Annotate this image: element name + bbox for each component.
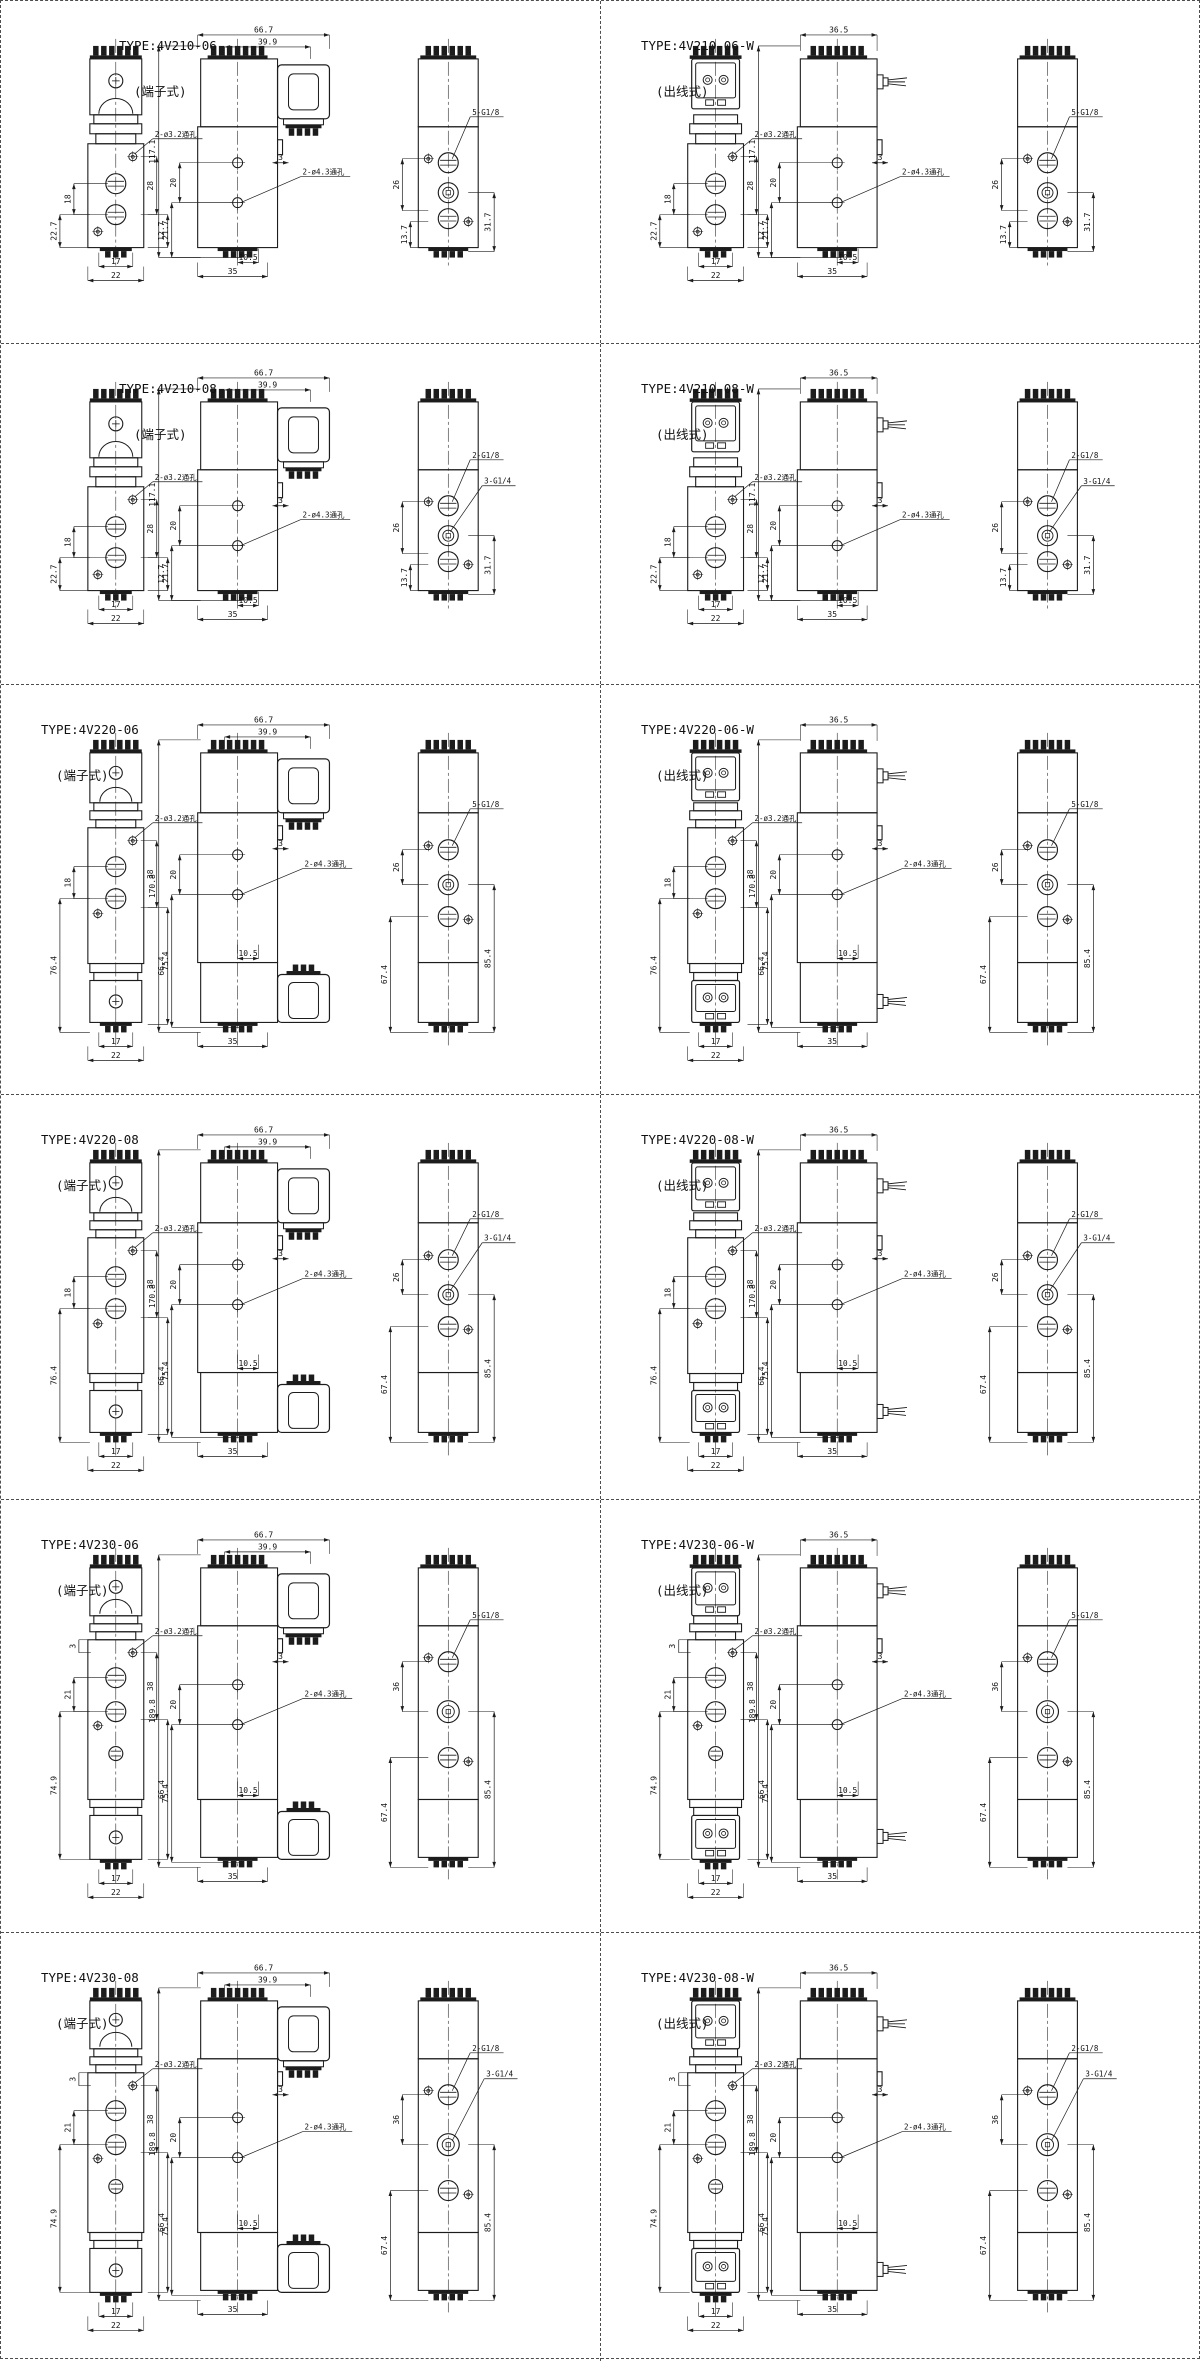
leader-label: 2-ø4.3通孔 <box>304 1269 346 1279</box>
dim-label: 189.8 <box>748 1699 757 1723</box>
dim-label: 20 <box>169 870 178 880</box>
leader-label: 2-G1/8 <box>1071 1210 1098 1219</box>
valve-wiring-label: (端子式) <box>56 1178 139 1193</box>
panel-4v220-08: TYPE:4V220-08 (端子式) 1876.43866.417222-ø3… <box>1 1095 600 1499</box>
leader-label: 5-G1/8 <box>1071 1611 1098 1620</box>
port-face-view: 2667.485.42-G1/83-G1/4 <box>380 1143 516 1456</box>
leader-label: 3-G1/4 <box>484 477 511 486</box>
dim-label: 170.8 <box>148 1284 157 1308</box>
dim-label: 35 <box>827 1872 837 1881</box>
dim-label: 35 <box>827 1037 837 1046</box>
dim-label: 85.4 <box>1083 2212 1092 2231</box>
valve-type-label: TYPE:4V220-08-W <box>641 1132 754 1147</box>
leader-label: 2-ø3.2通孔 <box>155 472 197 482</box>
side-view-connector: 3189.82075.410.53566.739.92-ø4.3通孔 <box>148 1963 352 2316</box>
panel-title: TYPE:4V210-06 (端子式) <box>119 8 217 129</box>
port-face-view: 2667.485.45-G1/8 <box>380 733 504 1046</box>
valve-type-label: TYPE:4V210-08-W <box>641 381 754 396</box>
side-view-connector: 3189.82075.410.53536.52-ø4.3通孔 <box>748 1531 952 1884</box>
dim-label: 85.4 <box>1083 949 1092 968</box>
valve-type-label: TYPE:4V210-08 <box>119 381 217 396</box>
leader-label: 2-ø3.2通孔 <box>155 129 197 139</box>
dim-label: 13.7 <box>999 225 1008 244</box>
dim-label: 189.8 <box>748 2132 757 2156</box>
dim-label: 117.1 <box>748 140 757 164</box>
dim-label: 66.7 <box>254 1531 273 1540</box>
dim-label: 85.4 <box>484 2212 493 2231</box>
dim-label: 21 <box>663 2122 672 2132</box>
leader-label: 2-ø3.2通孔 <box>155 1223 197 1233</box>
dim-label: 22.7 <box>649 221 658 240</box>
dim-label: 3 <box>878 1653 883 1662</box>
dim-label: 38 <box>146 2114 155 2124</box>
leader-label: 2-ø4.3通孔 <box>902 167 944 177</box>
dim-label: 17 <box>711 1037 721 1046</box>
dim-label: 35 <box>827 1447 837 1456</box>
side-view-connector: 3170.82075.410.53566.739.92-ø4.3通孔 <box>148 1126 352 1459</box>
panel-title: TYPE:4V220-08 (端子式) <box>41 1102 139 1223</box>
leader-label: 2-ø3.2通孔 <box>754 129 796 139</box>
dim-label: 76.4 <box>49 1366 58 1385</box>
dim-label: 18 <box>63 878 72 888</box>
dim-label: 18 <box>63 194 72 204</box>
leader-label: 2-ø4.3通孔 <box>302 510 344 520</box>
dim-label: 20 <box>169 521 178 531</box>
dim-label: 26 <box>991 1272 1000 1282</box>
dim-label: 3 <box>278 1653 283 1662</box>
dim-label: 13.7 <box>400 225 409 244</box>
panel-4v230-08: TYPE:4V230-08 (端子式) 32174.93866.417222-ø… <box>1 1933 600 2361</box>
dim-label: 36.5 <box>829 715 848 724</box>
dim-label: 21 <box>63 2122 72 2132</box>
port-face-view: 2667.485.42-G1/83-G1/4 <box>979 1143 1114 1456</box>
leader-label: 2-ø3.2通孔 <box>754 813 796 823</box>
dim-label: 85.4 <box>484 1359 493 1378</box>
dim-label: 36.5 <box>829 369 848 378</box>
port-face-view: 2667.485.45-G1/8 <box>979 733 1103 1046</box>
dim-label: 3 <box>278 497 283 506</box>
dim-label: 26 <box>991 862 1000 872</box>
valve-drawing: 1822.72812.717222-ø3.2通孔3117.12021.710.5… <box>1 1 600 343</box>
dim-label: 75.4 <box>161 2216 170 2235</box>
leader-label: 5-G1/8 <box>472 108 499 117</box>
valve-type-label: TYPE:4V230-06-W <box>641 1537 754 1552</box>
valve-type-label: TYPE:4V220-08 <box>41 1132 139 1147</box>
panel-title: TYPE:4V230-08-W (出线式) <box>641 1940 754 2061</box>
dim-label: 17 <box>111 2307 121 2316</box>
dim-label: 31.7 <box>484 212 493 231</box>
leader-label: 2-ø4.3通孔 <box>304 2121 346 2131</box>
panel-4v210-08: TYPE:4V210-08 (端子式) 1822.72812.717222-ø3… <box>1 344 600 683</box>
dim-label: 75.4 <box>761 951 770 970</box>
port-face-view: 3667.485.45-G1/8 <box>979 1548 1103 1879</box>
dim-label: 36 <box>991 1682 1000 1692</box>
dim-label: 10.5 <box>238 2219 257 2228</box>
leader-label: 3-G1/4 <box>1083 477 1110 486</box>
panel-4v210-06: TYPE:4V210-06 (端子式) 1822.72812.717222-ø3… <box>1 1 600 343</box>
dim-label: 39.9 <box>258 1975 277 1984</box>
dim-label: 85.4 <box>484 949 493 968</box>
dim-label: 21.7 <box>761 564 770 583</box>
dim-label: 20 <box>769 1700 778 1710</box>
dim-label: 20 <box>769 2132 778 2142</box>
panel-title: TYPE:4V230-06 (端子式) <box>41 1507 139 1628</box>
dim-label: 3 <box>668 1644 677 1649</box>
dim-label: 22 <box>711 614 721 623</box>
dim-label: 20 <box>769 870 778 880</box>
leader-label: 2-ø3.2通孔 <box>754 1626 796 1636</box>
dim-label: 10.5 <box>838 596 857 605</box>
leader-label: 5-G1/8 <box>472 800 499 809</box>
dim-label: 67.4 <box>380 2235 389 2254</box>
dim-label: 3 <box>878 839 883 848</box>
valve-wiring-label: (端子式) <box>134 427 217 442</box>
dim-label: 20 <box>769 521 778 531</box>
dim-label: 10.5 <box>238 253 257 262</box>
dim-label: 20 <box>169 1280 178 1290</box>
leader-label: 2-ø4.3通孔 <box>904 1269 946 1279</box>
dim-label: 85.4 <box>1083 1780 1092 1799</box>
leader-label: 3-G1/4 <box>486 2069 513 2078</box>
dim-label: 75.4 <box>761 2216 770 2235</box>
panel-title: TYPE:4V220-08-W (出线式) <box>641 1102 754 1223</box>
dim-label: 13.7 <box>999 568 1008 587</box>
valve-type-label: TYPE:4V230-08 <box>41 1970 139 1985</box>
leader-label: 2-ø4.3通孔 <box>302 167 344 177</box>
dim-label: 17 <box>111 257 121 266</box>
dim-label: 22 <box>711 1051 721 1060</box>
valve-wiring-label: (出线式) <box>656 427 754 442</box>
dim-label: 28 <box>146 524 155 534</box>
dim-label: 28 <box>746 181 755 191</box>
side-view-connector: 3189.82075.410.53566.739.92-ø4.3通孔 <box>148 1531 352 1884</box>
dim-label: 22.7 <box>49 565 58 584</box>
dim-label: 18 <box>663 194 672 204</box>
panel-title: TYPE:4V210-08-W (出线式) <box>641 351 754 472</box>
dim-label: 76.4 <box>649 956 658 975</box>
side-view-connector: 3170.82075.410.53536.52-ø4.3通孔 <box>748 715 952 1048</box>
dim-label: 35 <box>827 610 837 619</box>
dim-label: 20 <box>169 178 178 188</box>
dim-label: 3 <box>878 1249 883 1258</box>
dim-label: 22.7 <box>49 221 58 240</box>
dim-label: 66.7 <box>254 25 273 34</box>
valve-type-label: TYPE:4V230-08-W <box>641 1970 754 1985</box>
dim-label: 35 <box>228 2305 238 2314</box>
dim-label: 35 <box>228 1447 238 1456</box>
dim-label: 17 <box>711 600 721 609</box>
dim-label: 67.4 <box>979 1375 988 1394</box>
dim-label: 21.7 <box>761 220 770 239</box>
dim-label: 18 <box>63 1288 72 1298</box>
dim-label: 36.5 <box>829 1126 848 1135</box>
dim-label: 189.8 <box>148 1699 157 1723</box>
dim-label: 17 <box>711 1447 721 1456</box>
leader-label: 2-G1/8 <box>472 2044 499 2053</box>
dim-label: 10.5 <box>238 1359 257 1368</box>
dim-label: 10.5 <box>238 596 257 605</box>
dim-label: 170.8 <box>748 874 757 898</box>
valve-wiring-label: (端子式) <box>56 2016 139 2031</box>
dim-label: 67.4 <box>979 965 988 984</box>
dim-label: 74.9 <box>49 2208 58 2227</box>
valve-wiring-label: (出线式) <box>656 768 754 783</box>
dim-label: 35 <box>228 610 238 619</box>
dim-label: 10.5 <box>838 949 857 958</box>
panel-4v230-08-w: TYPE:4V230-08-W (出线式) 32174.93866.417222… <box>600 1933 1199 2361</box>
drawing-sheet: TYPE:4V210-06 (端子式) 1822.72812.717222-ø3… <box>0 0 1200 2359</box>
leader-label: 2-G1/8 <box>472 451 499 460</box>
dim-label: 3 <box>668 2076 677 2081</box>
dim-label: 117.1 <box>148 140 157 164</box>
dim-label: 39.9 <box>258 727 277 736</box>
dim-label: 17 <box>111 1874 121 1883</box>
dim-label: 36.5 <box>829 25 848 34</box>
valve-wiring-label: (端子式) <box>56 768 139 783</box>
dim-label: 21.7 <box>161 220 170 239</box>
leader-label: 2-ø4.3通孔 <box>904 2121 946 2131</box>
leader-label: 2-ø3.2通孔 <box>754 1223 796 1233</box>
panel-4v220-06-w: TYPE:4V220-06-W (出线式) 1876.43866.417222-… <box>600 685 1199 1094</box>
dim-label: 26 <box>392 1272 401 1282</box>
leader-label: 2-G1/8 <box>472 1210 499 1219</box>
panel-4v230-06-w: TYPE:4V230-06-W (出线式) 32174.93866.417222… <box>600 1500 1199 1931</box>
dim-label: 74.9 <box>649 2208 658 2227</box>
dim-label: 22 <box>111 1051 121 1060</box>
dim-label: 17 <box>711 2307 721 2316</box>
leader-label: 2-ø4.3通孔 <box>304 1689 346 1699</box>
dim-label: 35 <box>827 2305 837 2314</box>
dim-label: 170.8 <box>748 1284 757 1308</box>
dim-label: 20 <box>769 178 778 188</box>
leader-label: 2-ø4.3通孔 <box>904 859 946 869</box>
dim-label: 117.1 <box>148 483 157 507</box>
dim-label: 26 <box>392 862 401 872</box>
dim-label: 10.5 <box>838 1359 857 1368</box>
dim-label: 66.7 <box>254 715 273 724</box>
dim-label: 10.5 <box>838 253 857 262</box>
dim-label: 26 <box>991 523 1000 533</box>
panel-4v220-06: TYPE:4V220-06 (端子式) 1876.43866.417222-ø3… <box>1 685 600 1094</box>
dim-label: 28 <box>746 524 755 534</box>
dim-label: 3 <box>878 153 883 162</box>
dim-label: 17 <box>711 1874 721 1883</box>
panel-4v220-08-w: TYPE:4V220-08-W (出线式) 1876.43866.417222-… <box>600 1095 1199 1499</box>
valve-wiring-label: (出线式) <box>656 1583 754 1598</box>
side-view-connector: 3170.82075.410.53536.52-ø4.3通孔 <box>748 1126 952 1459</box>
dim-label: 67.4 <box>380 1803 389 1822</box>
dim-label: 22 <box>711 1461 721 1470</box>
dim-label: 67.4 <box>380 1375 389 1394</box>
dim-label: 22 <box>111 2321 121 2330</box>
dim-label: 75.4 <box>761 1784 770 1803</box>
dim-label: 3 <box>878 2085 883 2094</box>
dim-label: 26 <box>991 180 1000 190</box>
dim-label: 28 <box>146 181 155 191</box>
dim-label: 36 <box>392 2114 401 2124</box>
dim-label: 85.4 <box>484 1780 493 1799</box>
dim-label: 3 <box>878 497 883 506</box>
dim-label: 76.4 <box>649 1366 658 1385</box>
port-face-view: 2613.731.75-G1/8 <box>392 39 504 269</box>
dim-label: 22 <box>111 614 121 623</box>
dim-label: 67.4 <box>380 965 389 984</box>
dim-label: 22 <box>711 1888 721 1897</box>
dim-label: 39.9 <box>258 37 277 46</box>
dim-label: 31.7 <box>1083 556 1092 575</box>
dim-label: 17 <box>711 257 721 266</box>
leader-label: 2-ø3.2通孔 <box>754 2059 796 2069</box>
leader-label: 5-G1/8 <box>1071 800 1098 809</box>
valve-type-label: TYPE:4V230-06 <box>41 1537 139 1552</box>
dim-label: 66.7 <box>254 1126 273 1135</box>
dim-label: 38 <box>146 1682 155 1692</box>
dim-label: 189.8 <box>148 2132 157 2156</box>
dim-label: 3 <box>68 1644 77 1649</box>
panel-title: TYPE:4V220-06 (端子式) <box>41 692 139 813</box>
valve-type-label: TYPE:4V210-06-W <box>641 38 754 53</box>
dim-label: 85.4 <box>1083 1359 1092 1378</box>
dim-label: 36 <box>991 2114 1000 2124</box>
leader-label: 2-ø4.3通孔 <box>902 510 944 520</box>
dim-label: 75.4 <box>161 951 170 970</box>
panel-title: TYPE:4V230-08 (端子式) <box>41 1940 139 2061</box>
port-face-view: 3667.485.45-G1/8 <box>380 1548 504 1879</box>
dim-label: 22 <box>111 1461 121 1470</box>
dim-label: 21 <box>63 1690 72 1700</box>
port-face-view: 2613.731.75-G1/8 <box>991 39 1103 269</box>
leader-label: 2-ø3.2通孔 <box>155 2059 197 2069</box>
valve-wiring-label: (出线式) <box>656 84 754 99</box>
dim-label: 36.5 <box>829 1531 848 1540</box>
dim-label: 74.9 <box>649 1776 658 1795</box>
side-view-connector: 3170.82075.410.53566.739.92-ø4.3通孔 <box>148 715 352 1048</box>
leader-label: 5-G1/8 <box>1071 108 1098 117</box>
valve-wiring-label: (出线式) <box>656 2016 754 2031</box>
leader-label: 2-ø3.2通孔 <box>155 813 197 823</box>
dim-label: 67.4 <box>979 1803 988 1822</box>
dim-label: 22.7 <box>649 565 658 584</box>
leader-label: 3-G1/4 <box>484 1234 511 1243</box>
dim-label: 20 <box>169 2132 178 2142</box>
dim-label: 18 <box>63 538 72 548</box>
dim-label: 20 <box>169 1700 178 1710</box>
dim-label: 75.4 <box>161 1361 170 1380</box>
dim-label: 22 <box>711 271 721 280</box>
dim-label: 26 <box>392 523 401 533</box>
panel-title: TYPE:4V230-06-W (出线式) <box>641 1507 754 1628</box>
side-view-connector: 3117.12021.710.53536.52-ø4.3通孔 <box>748 369 950 622</box>
dim-label: 10.5 <box>238 1786 257 1795</box>
valve-wiring-label: (端子式) <box>134 84 217 99</box>
dim-label: 75.4 <box>761 1361 770 1380</box>
dim-label: 31.7 <box>484 556 493 575</box>
leader-label: 2-ø4.3通孔 <box>304 859 346 869</box>
port-face-view: 2613.731.72-G1/83-G1/4 <box>991 382 1115 612</box>
dim-label: 38 <box>746 2114 755 2124</box>
dim-label: 3 <box>278 1249 283 1258</box>
dim-label: 35 <box>228 267 238 276</box>
valve-drawing: 1822.72812.717222-ø3.2通孔3117.12021.710.5… <box>1 344 600 683</box>
panel-4v230-06: TYPE:4V230-06 (端子式) 32174.93866.417222-ø… <box>1 1500 600 1931</box>
dim-label: 36 <box>392 1682 401 1692</box>
dim-label: 21.7 <box>161 564 170 583</box>
dim-label: 39.9 <box>258 1138 277 1147</box>
dim-label: 67.4 <box>979 2235 988 2254</box>
dim-label: 10.5 <box>838 2219 857 2228</box>
dim-label: 20 <box>769 1280 778 1290</box>
panel-title: TYPE:4V220-06-W (出线式) <box>641 692 754 813</box>
dim-label: 18 <box>663 538 672 548</box>
dim-label: 35 <box>827 267 837 276</box>
dim-label: 18 <box>663 878 672 888</box>
panel-4v210-06-w: TYPE:4V210-06-W (出线式) 1822.72812.717222-… <box>600 1 1199 343</box>
leader-label: 2-ø4.3通孔 <box>904 1689 946 1699</box>
port-face-view: 3667.485.42-G1/83-G1/4 <box>380 1981 518 2312</box>
dim-label: 3 <box>278 2085 283 2094</box>
leader-label: 2-G1/8 <box>1071 451 1098 460</box>
dim-label: 39.9 <box>258 381 277 390</box>
dim-label: 38 <box>746 1682 755 1692</box>
dim-label: 22 <box>111 271 121 280</box>
dim-label: 35 <box>228 1037 238 1046</box>
dim-label: 13.7 <box>400 568 409 587</box>
panel-title: TYPE:4V210-08 (端子式) <box>119 351 217 472</box>
dim-label: 36.5 <box>829 1963 848 1972</box>
dim-label: 66.7 <box>254 369 273 378</box>
dim-label: 3 <box>68 2076 77 2081</box>
leader-label: 2-ø3.2通孔 <box>754 472 796 482</box>
dim-label: 117.1 <box>748 483 757 507</box>
leader-label: 3-G1/4 <box>1085 2069 1112 2078</box>
dim-label: 26 <box>392 180 401 190</box>
dim-label: 74.9 <box>49 1776 58 1795</box>
leader-label: 5-G1/8 <box>472 1611 499 1620</box>
valve-type-label: TYPE:4V220-06-W <box>641 722 754 737</box>
side-view-connector: 3117.12021.710.53536.52-ø4.3通孔 <box>748 25 950 278</box>
dim-label: 66.7 <box>254 1963 273 1972</box>
dim-label: 21 <box>663 1690 672 1700</box>
dim-label: 3 <box>278 153 283 162</box>
leader-label: 2-ø3.2通孔 <box>155 1626 197 1636</box>
panel-title: TYPE:4V210-06-W (出线式) <box>641 8 754 129</box>
dim-label: 35 <box>228 1872 238 1881</box>
leader-label: 3-G1/4 <box>1083 1234 1110 1243</box>
valve-wiring-label: (端子式) <box>56 1583 139 1598</box>
leader-label: 2-G1/8 <box>1071 2044 1098 2053</box>
dim-label: 170.8 <box>148 874 157 898</box>
valve-wiring-label: (出线式) <box>656 1178 754 1193</box>
dim-label: 3 <box>278 839 283 848</box>
dim-label: 17 <box>111 1037 121 1046</box>
valve-type-label: TYPE:4V210-06 <box>119 38 217 53</box>
dim-label: 18 <box>663 1288 672 1298</box>
dim-label: 17 <box>111 1447 121 1456</box>
panel-4v210-08-w: TYPE:4V210-08-W (出线式) 1822.72812.717222-… <box>600 344 1199 683</box>
dim-label: 76.4 <box>49 956 58 975</box>
side-view-connector: 3189.82075.410.53536.52-ø4.3通孔 <box>748 1963 952 2316</box>
valve-type-label: TYPE:4V220-06 <box>41 722 139 737</box>
dim-label: 22 <box>111 1888 121 1897</box>
dim-label: 22 <box>711 2321 721 2330</box>
dim-label: 39.9 <box>258 1543 277 1552</box>
dim-label: 10.5 <box>838 1786 857 1795</box>
port-face-view: 2613.731.72-G1/83-G1/4 <box>392 382 516 612</box>
dim-label: 10.5 <box>238 949 257 958</box>
dim-label: 17 <box>111 600 121 609</box>
dim-label: 31.7 <box>1083 212 1092 231</box>
port-face-view: 3667.485.42-G1/83-G1/4 <box>979 1981 1116 2312</box>
